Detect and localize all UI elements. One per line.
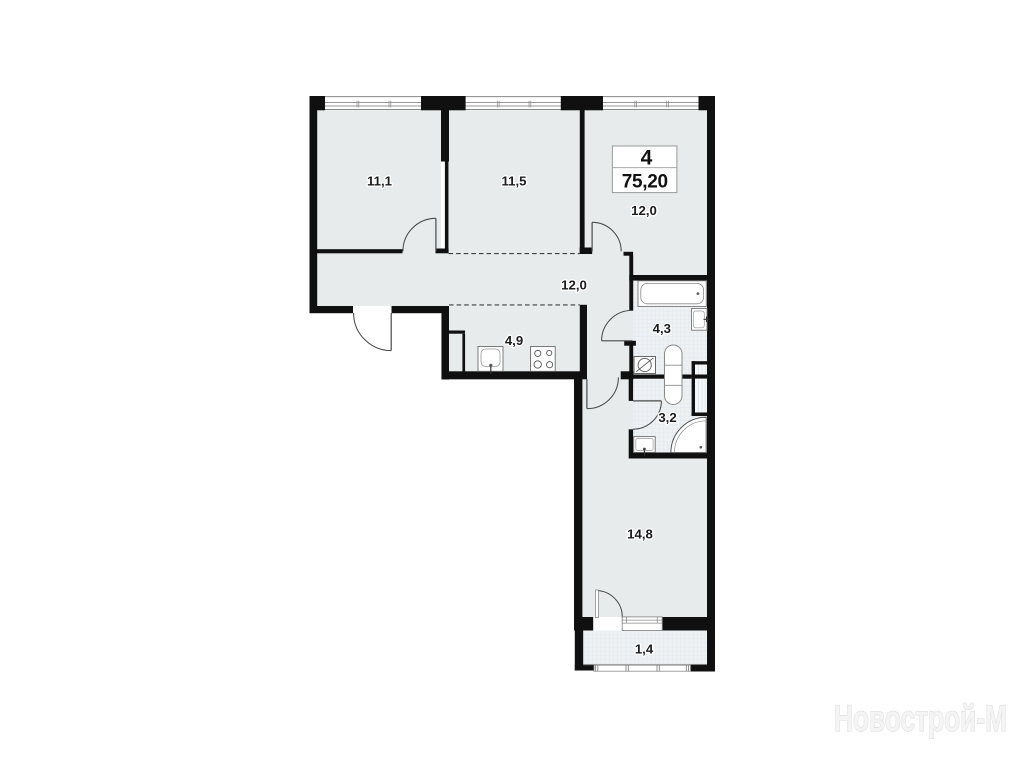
svg-text:12,0: 12,0 <box>561 277 587 292</box>
svg-text:4,9: 4,9 <box>505 333 523 348</box>
svg-text:12,0: 12,0 <box>631 203 657 218</box>
svg-text:11,5: 11,5 <box>502 174 527 189</box>
svg-text:4,3: 4,3 <box>653 321 671 336</box>
svg-text:4: 4 <box>641 146 653 169</box>
svg-text:14,8: 14,8 <box>627 527 653 542</box>
svg-text:3,2: 3,2 <box>658 410 676 425</box>
svg-text:11,1: 11,1 <box>367 174 392 189</box>
svg-text:Новострой-М: Новострой-М <box>834 697 1007 739</box>
svg-text:1,4: 1,4 <box>635 642 654 657</box>
svg-text:75,20: 75,20 <box>622 172 668 193</box>
